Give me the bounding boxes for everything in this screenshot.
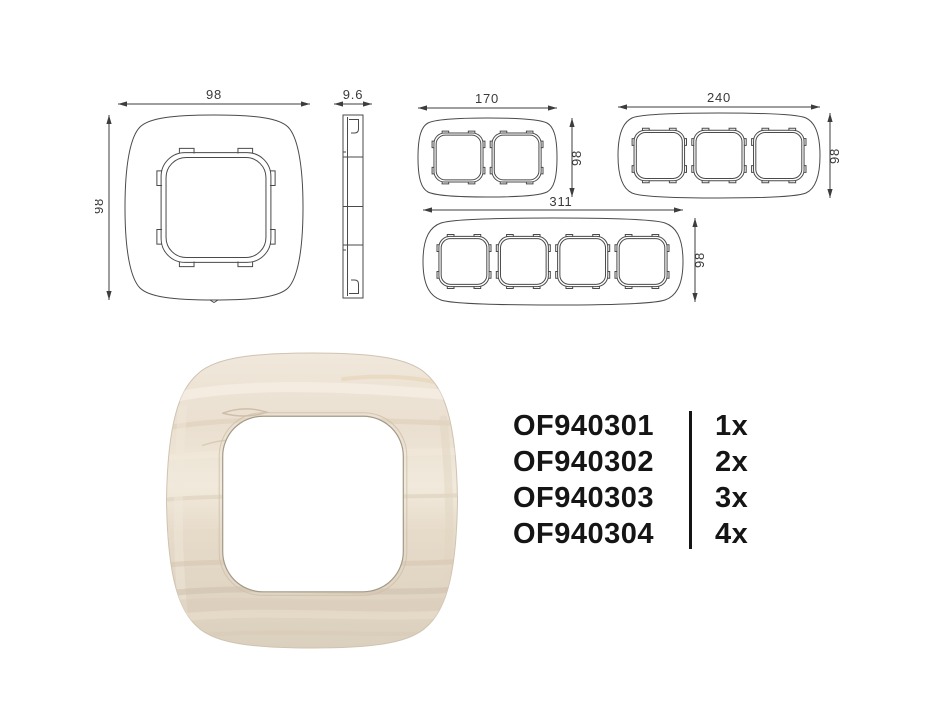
dimension-label-width: 240 [707,90,731,105]
four-gang-frame-view: 311 98 [415,196,715,316]
dimension-label-height: 98 [569,150,584,166]
product-quantity: 3x [689,480,748,516]
product-sheet: 98 98 9.6 [0,0,925,720]
module-aperture [556,234,610,288]
module-aperture [157,148,275,266]
single-frame-front-view: 98 98 [95,88,320,303]
product-quantity: 2x [689,444,748,480]
module-aperture [496,234,550,288]
module-aperture [692,128,746,182]
divider-line [689,411,692,549]
frame-outline [418,118,557,197]
height-dimension: 98 [569,118,584,197]
product-quantity: 4x [689,516,748,552]
dimension-label-height: 98 [827,148,842,164]
height-dimension: 98 [95,115,112,300]
depth-dimension: 9.6 [334,88,372,107]
module-aperture [432,131,485,184]
height-dimension: 98 [827,113,842,198]
aperture-opening [223,416,404,592]
product-code: OF940302 [513,444,689,480]
dimension-label-height: 98 [692,252,707,268]
module-aperture [437,234,491,288]
dimension-label-width: 311 [549,196,572,209]
three-gang-frame-view: 240 98 [608,88,853,203]
product-code: OF940301 [513,408,689,444]
dimension-label-height: 98 [95,198,106,214]
frame-outline [423,218,683,305]
frame-outline [618,113,820,198]
product-code-row: OF940302 2x [513,444,793,480]
width-dimension: 170 [418,91,557,111]
module-aperture [615,234,669,288]
module-aperture [752,128,806,182]
dimension-label-depth: 9.6 [343,88,363,102]
width-dimension: 311 [423,196,683,213]
height-dimension: 98 [692,218,707,302]
product-code-row: OF940303 3x [513,480,793,516]
module-aperture [490,131,543,184]
module-aperture [632,128,686,182]
width-dimension: 98 [118,88,310,107]
profile-outline [343,115,363,298]
product-code-row: OF940304 4x [513,516,793,552]
frame-outline [125,115,303,300]
product-photo [162,349,462,652]
product-code: OF940303 [513,480,689,516]
product-code-list: OF940301 1x OF940302 2x OF940303 3x OF94… [513,408,793,552]
product-code: OF940304 [513,516,689,552]
dimension-label-width: 170 [475,91,499,106]
two-gang-frame-view: 170 98 [405,88,590,203]
product-code-row: OF940301 1x [513,408,793,444]
frame-side-view: 9.6 [328,88,378,303]
product-quantity: 1x [689,408,748,444]
width-dimension: 240 [618,90,820,110]
dimension-label-width: 98 [206,88,222,102]
